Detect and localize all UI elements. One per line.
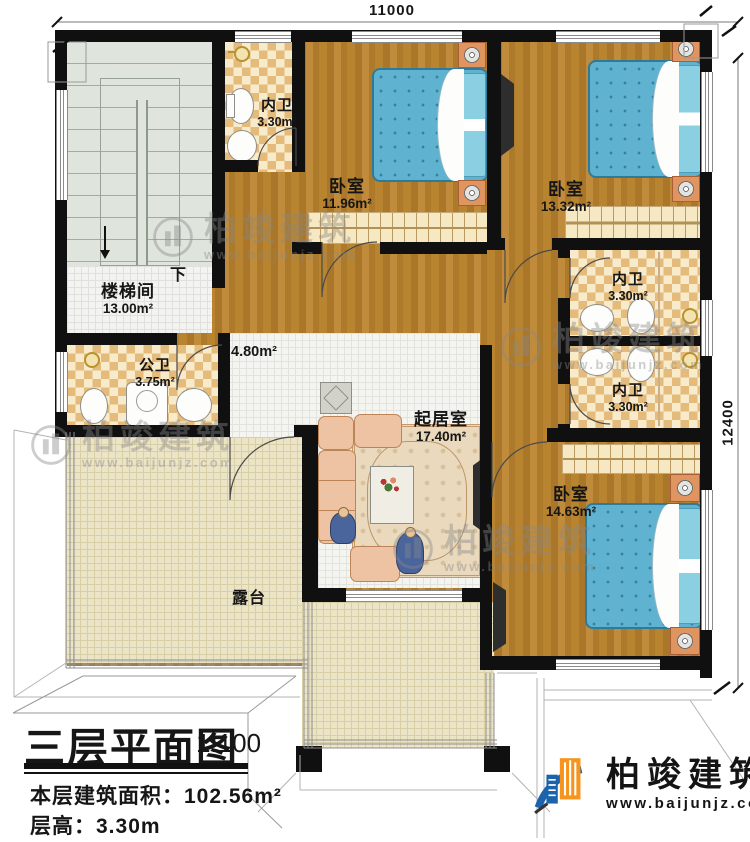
window [701, 300, 713, 356]
wall [302, 437, 318, 602]
wall [558, 250, 570, 258]
floor-plan: 11000 12400 楼梯间 13.00m² 内卫 3.30m² 卧室 11.… [0, 0, 750, 842]
title-underline-thin [24, 772, 248, 774]
towel-ring-icon [84, 352, 100, 368]
wall [212, 160, 258, 172]
window [701, 72, 713, 172]
sofa-corner-seat [318, 416, 354, 450]
nightstand [672, 176, 700, 202]
wall [55, 425, 230, 437]
window [701, 490, 713, 630]
room-label-terrace: 露台 [232, 590, 266, 608]
washer-drum [136, 390, 158, 412]
side-table [320, 382, 352, 414]
tv-bedroom2 [501, 74, 514, 156]
shower-partition [658, 346, 660, 426]
armchair-top [354, 414, 402, 448]
sink-bath3 [580, 348, 614, 376]
brand-logo: 柏竣建筑 www.baijunjz.com [534, 752, 750, 818]
wall [558, 336, 712, 346]
person-figure [396, 532, 424, 574]
dimension-right: 12400 [720, 392, 737, 454]
wall [302, 588, 346, 602]
plan-scale: 1:100 [196, 728, 261, 759]
nightstand [458, 180, 486, 206]
column [484, 746, 510, 772]
sink-bath1 [227, 130, 257, 162]
sink-public-bath [176, 388, 212, 422]
window [352, 31, 462, 43]
window [556, 31, 660, 43]
wall [294, 425, 318, 437]
room-label-public-bath: 公卫 3.75m² [135, 358, 175, 389]
towel-ring-icon [682, 352, 698, 368]
room-label-living: 起居室 17.40m² [414, 410, 468, 444]
window [56, 352, 68, 412]
room-label-bedroom1: 卧室 11.96m² [322, 177, 372, 211]
towel-ring-icon [682, 308, 698, 324]
room-label-bath2: 内卫 3.30m² [608, 272, 648, 303]
stairs-down-label: 下 [170, 261, 186, 285]
bed-bedroom3 [585, 503, 703, 629]
wall [380, 242, 487, 254]
window-sliding-door [346, 590, 462, 602]
room-label-bedroom2: 卧室 13.32m² [541, 180, 591, 214]
tv-bedroom3 [493, 582, 506, 652]
floor-area-value: 102.56m² [184, 785, 282, 808]
toilet-tank [226, 94, 235, 118]
stair-arrow-line [104, 226, 106, 252]
brand-building-icon [534, 752, 596, 818]
wall [212, 172, 225, 288]
floor-height-row: 层高：3.30m [30, 810, 161, 840]
wall [212, 42, 225, 172]
wall [487, 238, 505, 250]
terrace-floor [66, 437, 302, 663]
nightstand [458, 42, 486, 68]
bed-bedroom1 [372, 68, 488, 182]
brand-name: 柏竣建筑 [606, 758, 750, 792]
sink-bath2 [580, 304, 614, 332]
room-label-bedroom3: 卧室 14.63m² [546, 485, 596, 519]
toilet-bath2 [627, 298, 655, 334]
wall [218, 333, 230, 437]
dimension-top: 11000 [352, 2, 432, 19]
towel-ring-icon [234, 46, 250, 62]
flower-decor [374, 472, 406, 500]
window [56, 90, 68, 200]
person-figure [330, 512, 356, 544]
wardrobe-bedroom3 [562, 444, 702, 474]
wall [480, 345, 492, 666]
terrace-floor-extension [302, 602, 494, 748]
toilet-bath3 [627, 346, 655, 382]
bed-bedroom2 [588, 60, 703, 178]
floor-height-label: 层高： [30, 815, 96, 838]
toilet-public-bath [80, 388, 108, 424]
column [296, 746, 322, 772]
room-label-bath1: 内卫 3.30m² [257, 98, 297, 129]
floor-height-value: 3.30m [96, 815, 161, 838]
brand-url: www.baijunjz.com [606, 795, 750, 812]
stair-rail [136, 100, 148, 265]
stair-arrow-head [100, 250, 110, 259]
room-label-hall: 4.80m² [231, 344, 277, 360]
towel-bar [228, 51, 236, 53]
nightstand [670, 627, 700, 655]
wardrobe-bedroom1 [308, 212, 488, 244]
nightstand [670, 474, 700, 502]
shower-partition [658, 252, 660, 336]
wall [55, 333, 177, 345]
wall [547, 428, 712, 442]
window [235, 31, 291, 43]
wall [487, 42, 501, 250]
room-label-staircase: 楼梯间 13.00m² [101, 282, 155, 316]
wall [552, 238, 712, 250]
title-underline [24, 763, 248, 769]
floor-area-row: 本层建筑面积：102.56m² [30, 780, 282, 810]
floor-area-label: 本层建筑面积： [30, 785, 184, 808]
wall [292, 242, 322, 254]
room-label-bath3: 内卫 3.30m² [608, 383, 648, 414]
window [556, 659, 660, 670]
armchair-bottom [350, 546, 400, 582]
